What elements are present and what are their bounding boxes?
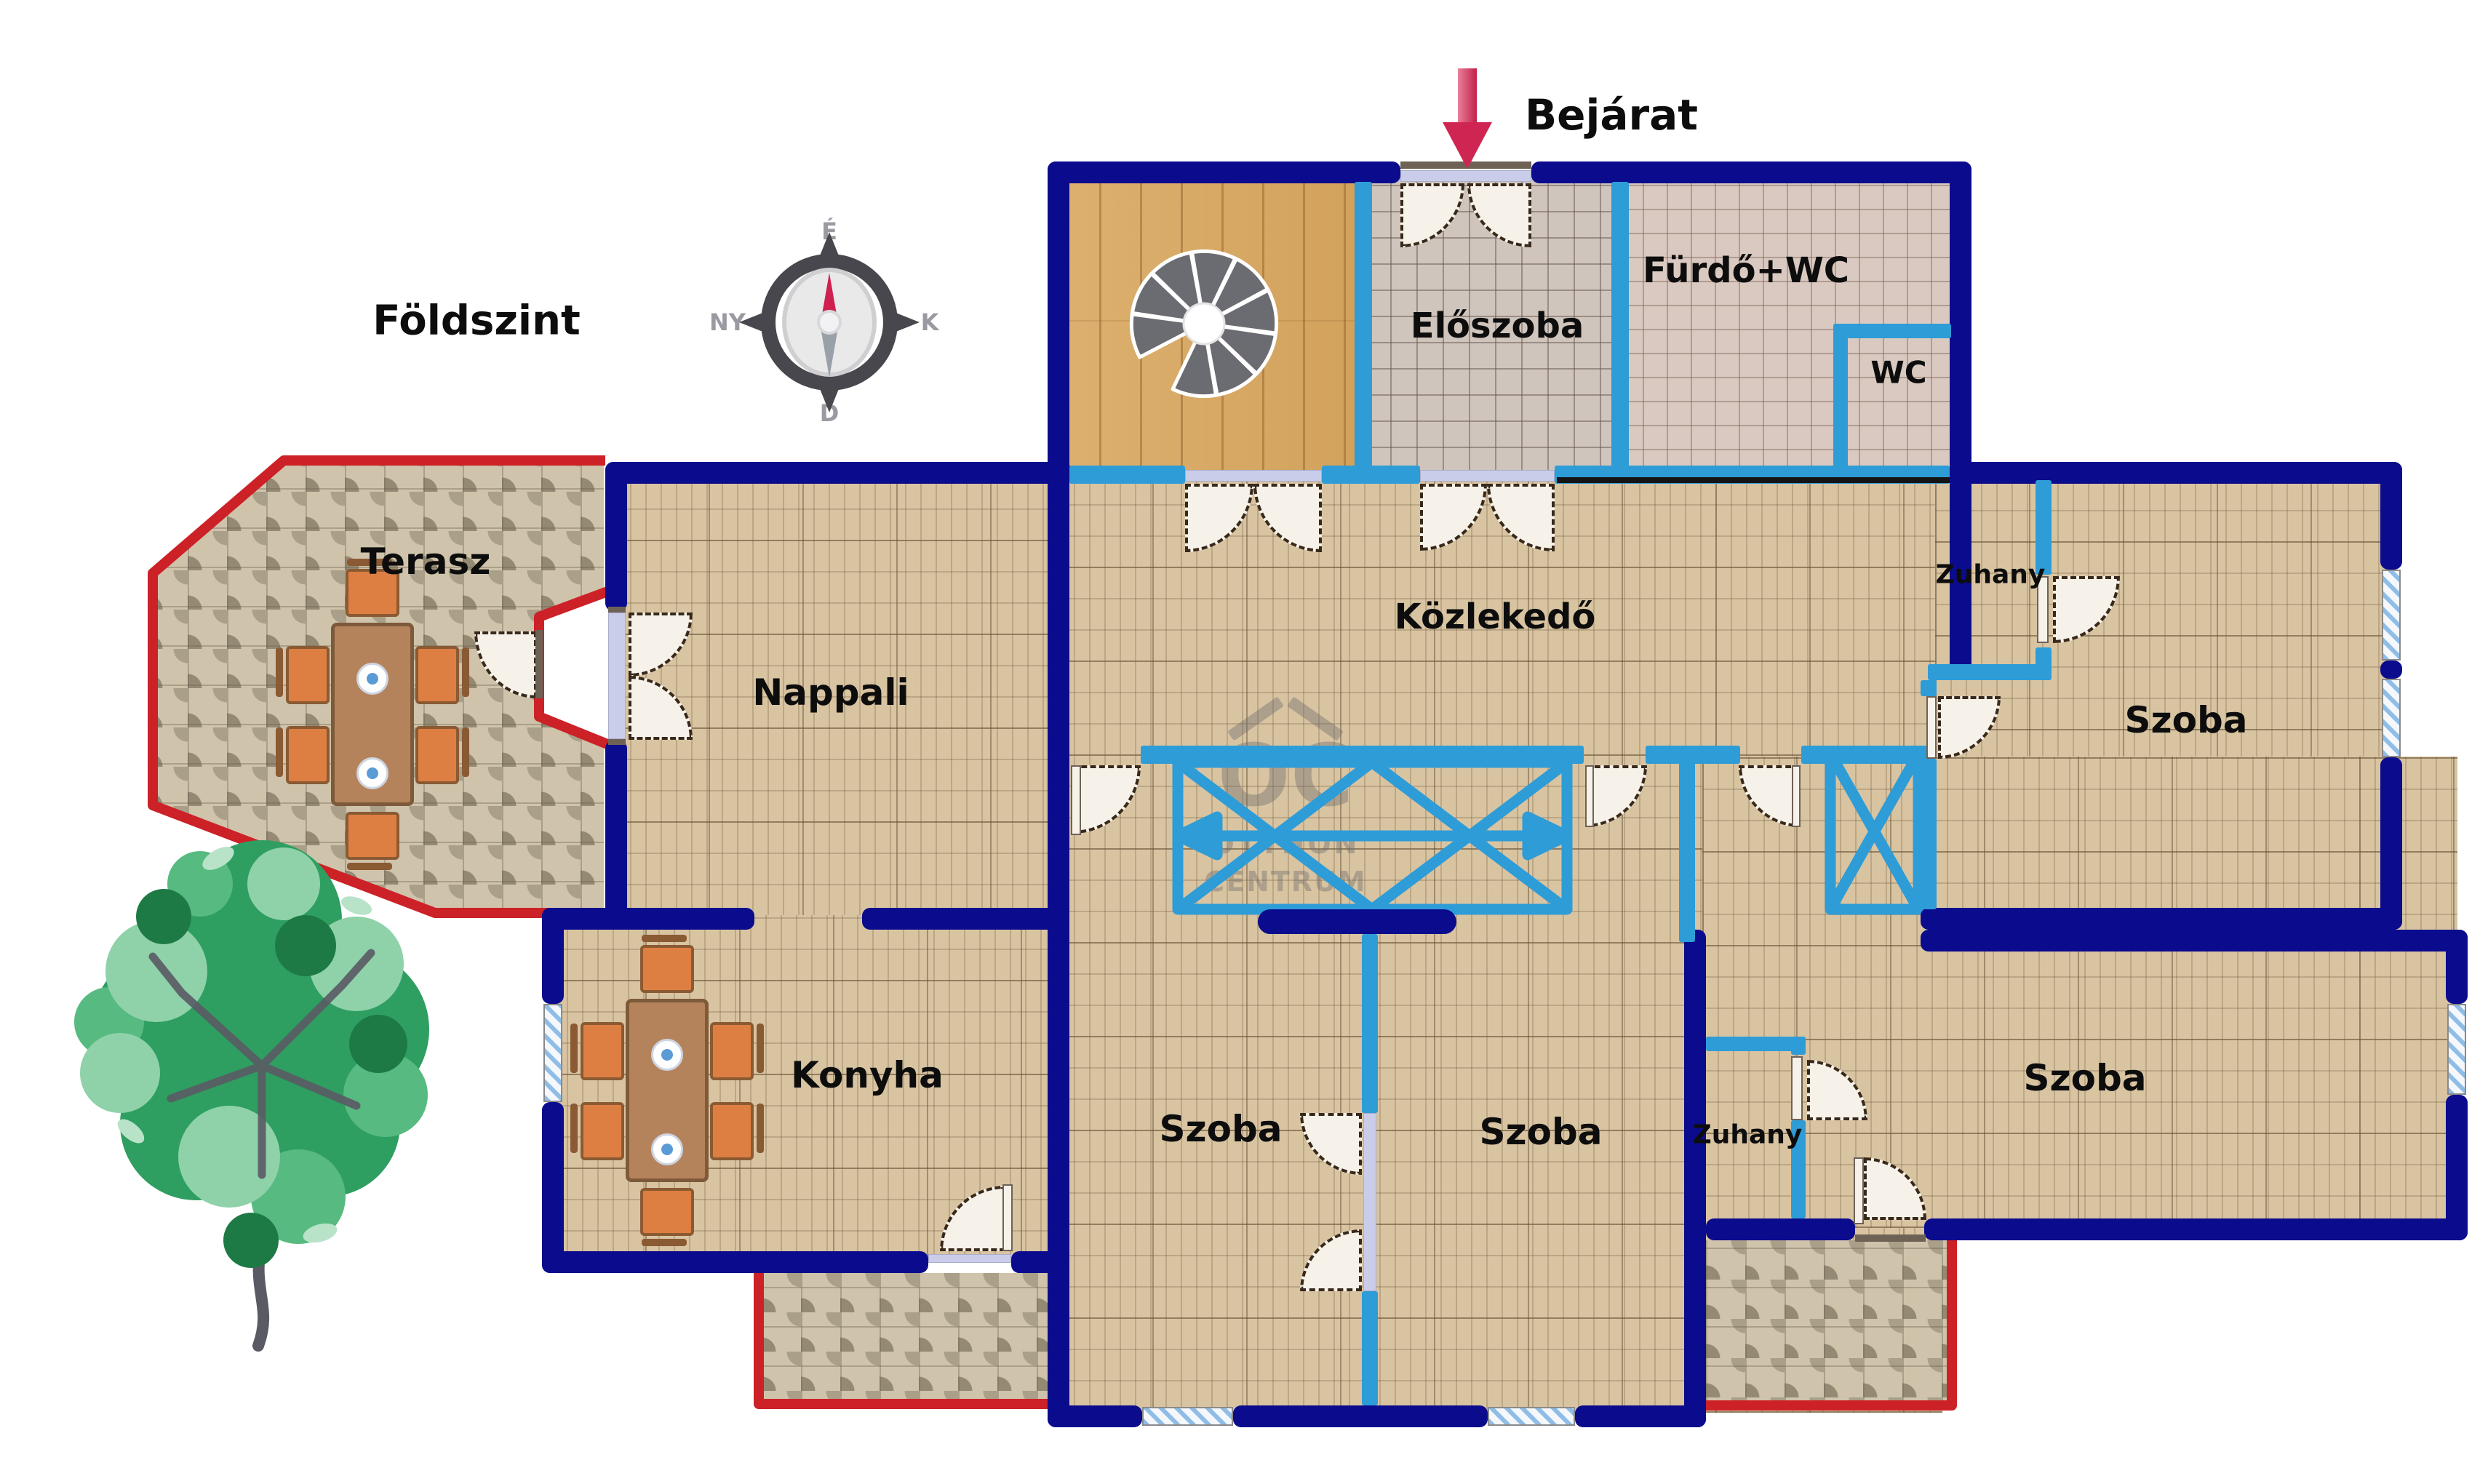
interior-wall [1921,680,1937,696]
interior-wall [1362,1291,1378,1405]
patio-left-border [759,1273,1051,1404]
room-label-eloszoba: Előszoba [1411,306,1584,346]
interior-wall [1833,324,1848,474]
interior-wall [1791,1037,1806,1055]
wall-segment [2446,930,2468,1004]
door-leaf [1002,1184,1013,1251]
door-sill [1185,470,1322,482]
plate [356,757,388,789]
wall-segment [1684,930,1706,1427]
compass-rose-icon [735,228,924,417]
chair [286,646,330,704]
wall-segment [2380,757,2402,930]
window [543,1004,562,1102]
room-label-kozlekedo: Közlekedő [1395,597,1596,637]
plate [356,663,388,695]
chair [415,726,459,784]
chair [640,945,694,993]
room-label-terasz: Terasz [361,540,491,583]
wall-segment [862,908,1069,930]
patio-right-border [1706,1240,1952,1405]
wall-segment [542,908,753,930]
door-leaf [1926,696,1937,759]
door-lintel [608,739,626,745]
door-leaf [1854,1157,1864,1224]
floor-plan: OC OTTHON CENTRUM [0,0,2488,1484]
room-label-szoba-bottom-right: Szoba [2024,1057,2147,1099]
room-label-furdo-wc: Fürdő+WC [1643,250,1849,291]
room-label-szoba-right: Szoba [2125,699,2248,741]
spiral-staircase-icon [1117,236,1291,411]
wall-segment [1950,161,1971,680]
interior-wall [1322,466,1420,484]
interior-wall [1921,759,1937,909]
dining-set-konyha [576,935,758,1240]
floor-title: Földszint [372,298,581,345]
entrance-arrow-head-icon [1443,122,1492,169]
room-label-szoba-bottom-left: Szoba [1160,1108,1283,1150]
door-leaf [1071,765,1081,835]
wall-segment [1706,1218,1855,1240]
plate [651,1133,683,1165]
wall-segment [605,462,627,611]
door-sill [1400,170,1531,182]
door-sill [928,1254,1011,1263]
wall-segment [605,462,1071,484]
window [1142,1407,1233,1426]
wall-segment [1921,930,2468,952]
wardrobe-closet-large [1178,762,1567,909]
room-label-zuhany-lower: Zuhany [1693,1120,1803,1150]
interior-wall [1362,934,1378,1113]
interior-wall [1679,746,1695,942]
interior-wall [1833,324,1951,338]
interior-wall [1928,664,2052,680]
interior-wall [1611,182,1629,474]
wall-segment [1011,1251,1069,1273]
wall-segment [1048,161,1400,183]
room-label-wc: WC [1870,355,1926,391]
wall-partition-bar [1258,909,1456,934]
window [2382,679,2401,757]
door-leaf [1792,765,1801,827]
chair [581,1022,624,1080]
chair [640,1188,694,1236]
entrance-arrow-icon [1458,68,1477,127]
chair [710,1102,754,1160]
interior-wall [1801,746,1928,764]
room-label-nappali: Nappali [752,671,909,714]
plate [651,1039,683,1071]
wall-segment [1048,161,1069,1427]
window [2382,570,2401,661]
wall-segment [542,1102,564,1273]
wall-segment [1924,1218,2468,1240]
wall-segment [1575,1405,1706,1427]
room-label-konyha: Konyha [791,1054,944,1096]
wall-segment [2380,462,2402,570]
entrance-label: Bejárat [1525,90,1698,140]
wardrobe-closet-small [1830,754,1918,909]
wall-segment [605,741,627,930]
room-label-zuhany-upper: Zuhany [1936,560,2046,590]
wall-segment [542,1251,928,1273]
door-lintel [1855,1234,1926,1242]
chair [710,1022,754,1080]
wall-segment [1233,1405,1488,1427]
chair [286,726,330,784]
terrace-door-bay-border [539,593,604,743]
chair [415,646,459,704]
wall-segment [1950,462,2402,484]
door-sill [608,613,626,739]
door-leaf [1585,765,1594,827]
wall-segment [1531,161,1971,183]
interior-wall [1141,746,1584,764]
interior-wall [1069,466,1185,484]
wall-segment [1048,1405,1142,1427]
bath-boundary-line [1557,477,1950,483]
interior-wall [1355,182,1372,474]
room-label-szoba-bottom-center: Szoba [1480,1111,1603,1153]
wall-segment [2380,661,2402,679]
door-lintel [608,607,626,613]
window [1488,1407,1575,1426]
chair [581,1102,624,1160]
wall-segment [1921,908,2402,930]
door-post [535,630,543,698]
window [2447,1004,2466,1095]
door-leaf [1791,1056,1803,1120]
tree-icon [44,789,466,1357]
door-sill [1363,1113,1376,1291]
door-sill [1420,470,1555,482]
